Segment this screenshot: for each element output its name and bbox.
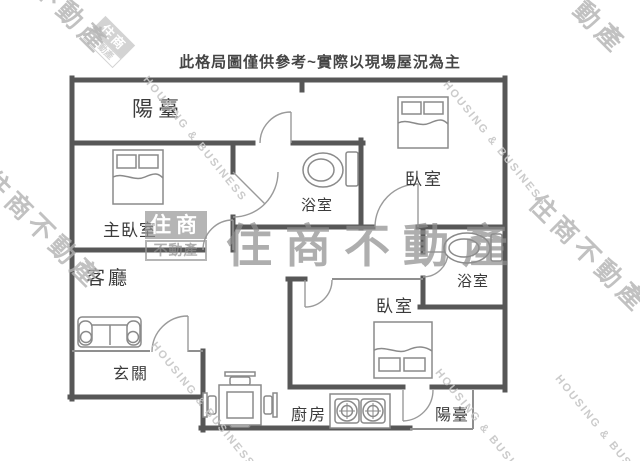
room-label-bedroom-2: 臥室 xyxy=(376,292,414,317)
toilet-icon-bathroom-2 xyxy=(444,233,502,263)
floor-plan-drawing xyxy=(0,0,640,461)
door-master-bedroom xyxy=(203,220,233,250)
toilet-icon-bathroom-1 xyxy=(303,152,358,187)
stove-icon xyxy=(330,394,390,428)
dining-table-icon xyxy=(203,372,277,427)
bed-icon-master xyxy=(113,150,163,204)
room-label-living-room: 客廳 xyxy=(86,263,130,290)
room-label-bathroom-2: 浴室 xyxy=(457,270,489,291)
room-label-bathroom-1: 浴室 xyxy=(301,194,333,215)
door-bedroom-1 xyxy=(375,184,418,227)
room-label-bedroom-1: 臥室 xyxy=(405,165,443,190)
door-bedroom-2 xyxy=(305,280,332,307)
room-label-kitchen: 廚房 xyxy=(291,401,327,425)
room-label-entry: 玄關 xyxy=(113,360,149,384)
door-bathroom-1 xyxy=(233,172,278,217)
bed-icon-bedroom-2 xyxy=(374,322,432,378)
room-label-balcony-bottom: 陽臺 xyxy=(435,401,469,425)
sofa-icon xyxy=(78,317,141,347)
bed-icon-bedroom-1 xyxy=(398,97,448,148)
door-bathroom-2 xyxy=(423,252,448,277)
room-label-balcony-top: 陽臺 xyxy=(132,93,184,123)
door-balcony-bottom xyxy=(403,390,433,421)
room-label-master-bedroom: 主臥室 xyxy=(103,216,157,241)
door-entry xyxy=(152,316,188,352)
door-balcony-top xyxy=(260,112,291,143)
floor-plan-page: 此格局圖僅供參考~實際以現場屋況為主 xyxy=(0,0,640,461)
